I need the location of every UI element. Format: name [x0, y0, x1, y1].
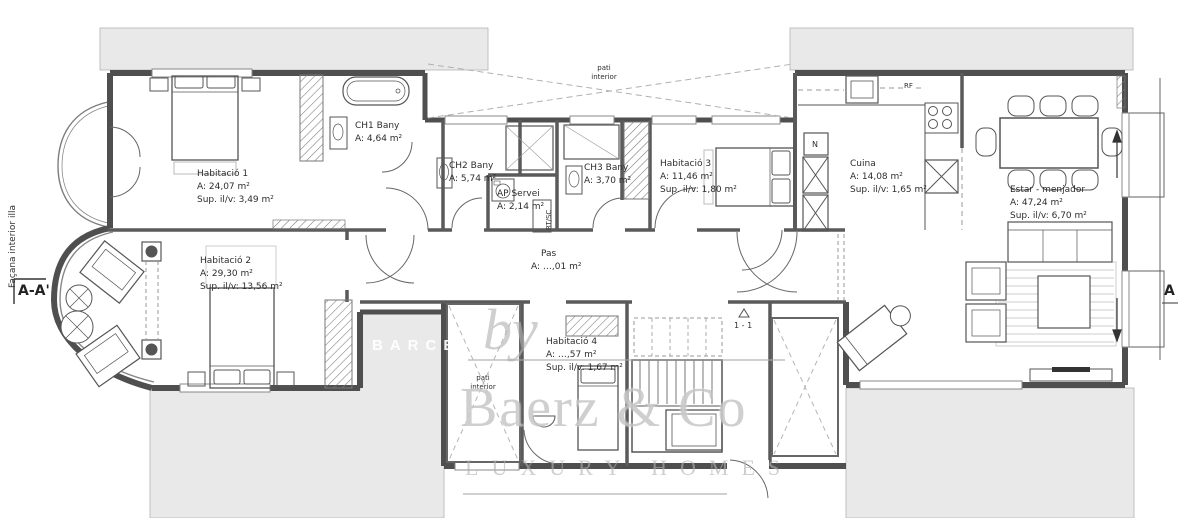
wardrobe-habitacio-1 — [300, 75, 323, 161]
room-label-cuina: Cuina A: 14,08 m² Sup. il/v: 1,65 m² — [850, 158, 927, 197]
pati-interior-small-label: pati interior — [458, 374, 508, 392]
wardrobe-habitacio-2 — [325, 300, 352, 388]
room-area: A: 2,14 m² — [497, 201, 544, 214]
lounge-chair — [837, 295, 919, 370]
room-area: A: 5,74 m² — [449, 173, 496, 186]
room-label-ch3-bany: CH3 Bany A: 3,70 m² — [584, 162, 631, 188]
room-label-habitacio-4: Habitació 4 A: …,57 m² Sup. il/v: 1,67 m… — [546, 336, 623, 375]
room-area: A: 29,30 m² — [200, 268, 283, 281]
room-name: CH2 Bany — [449, 160, 496, 173]
room-sup: Sup. il/v: 1,65 m² — [850, 184, 927, 197]
room-sup: Sup. il/v: 6,70 m² — [1010, 210, 1087, 223]
room-name: Habitació 4 — [546, 336, 623, 349]
watermark-side-text: BARCE — [372, 337, 460, 354]
room-label-habitacio-3: Habitació 3 A: 11,46 m² Sup. il/v: 1,80 … — [660, 158, 737, 197]
room-label-ch2-bany: CH2 Bany A: 5,74 m² — [449, 160, 496, 186]
room-label-ch1-bany: CH1 Bany A: 4,64 m² — [355, 120, 402, 146]
sofa-and-rug — [966, 222, 1116, 346]
room-name: AP Servei — [497, 188, 544, 201]
radiator-estar — [1117, 76, 1125, 108]
balcony-access-arrows — [1113, 131, 1121, 341]
watermark-rule-bottom — [463, 493, 727, 495]
stair-section-triangle — [739, 309, 749, 317]
room-label-habitacio-1: Habitació 1 A: 24,07 m² Sup. il/v: 3,49 … — [197, 168, 274, 207]
room-name: CH1 Bany — [355, 120, 402, 133]
floor-plan: Habitació 1 A: 24,07 m² Sup. il/v: 3,49 … — [0, 0, 1189, 518]
room-area: A: 3,70 m² — [584, 175, 631, 188]
stair-section-label: 1 - 1 — [734, 319, 752, 332]
room-label-ap-servei: AP Servei A: 2,14 m² — [497, 188, 544, 214]
room-area: A: 24,07 m² — [197, 181, 274, 194]
room-sup: Sup. il/v: 13,56 m² — [200, 281, 283, 294]
balconies — [1128, 113, 1164, 347]
room-name: Habitació 2 — [200, 255, 283, 268]
room-sup: Sup. il/v: 1,80 m² — [660, 184, 737, 197]
radiator-habitacio-1 — [273, 220, 345, 229]
room-label-pas: Pas A: …,01 m² — [531, 248, 581, 274]
room-label-habitacio-2: Habitació 2 A: 29,30 m² Sup. il/v: 13,56… — [200, 255, 283, 294]
fridge-label: RF — [904, 82, 913, 91]
room-area: A: 47,24 m² — [1010, 197, 1087, 210]
room-name: Cuina — [850, 158, 927, 171]
facade-label: Façana interior illa — [8, 205, 18, 288]
section-marker-a: A — [1164, 283, 1175, 299]
bed-habitacio-1 — [150, 76, 260, 174]
staircase — [632, 318, 722, 452]
room-area: A: …,01 m² — [531, 261, 581, 274]
room-name: Habitació 3 — [660, 158, 737, 171]
room-sup: Sup. il/v: 3,49 m² — [197, 194, 274, 207]
structural-columns — [142, 242, 161, 359]
tv-console — [1030, 367, 1112, 381]
room-area: A: 4,64 m² — [355, 133, 402, 146]
sitting-area-habitacio-2 — [61, 241, 144, 387]
room-label-estar-menjador: Estar - menjador A: 47,24 m² Sup. il/v: … — [1010, 184, 1087, 223]
pati-interior-top-label: pati interior — [578, 64, 630, 82]
utility-rt-sc-label: RT/SC — [545, 210, 553, 230]
room-sup: Sup. il/v: 1,67 m² — [546, 362, 623, 375]
room-name: CH3 Bany — [584, 162, 631, 175]
curved-balcony-left — [58, 102, 108, 227]
closet-n-label: N — [812, 138, 818, 151]
room-name: Estar - menjador — [1010, 184, 1087, 197]
room-area: A: 11,46 m² — [660, 171, 737, 184]
room-area: A: 14,08 m² — [850, 171, 927, 184]
watermark-rule-top — [468, 359, 785, 361]
room-name: Habitació 1 — [197, 168, 274, 181]
dining-table-and-chairs — [976, 96, 1122, 190]
room-name: Pas — [531, 248, 581, 261]
section-marker-a-a: A-A' — [18, 283, 50, 299]
